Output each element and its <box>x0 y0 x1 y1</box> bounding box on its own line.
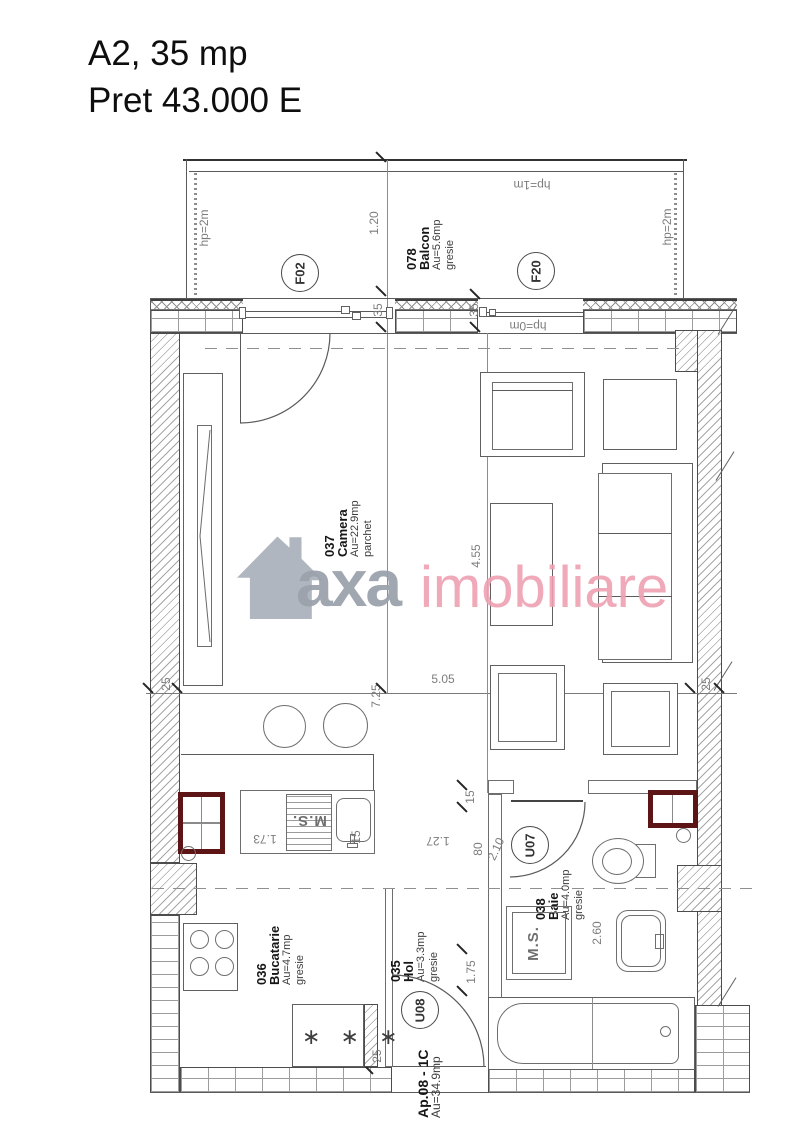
floor-plan: A2, 35 mp Pret 43.000 E hp=2m hp=2m hp=1… <box>0 0 800 1132</box>
bath-door-arc <box>510 802 585 877</box>
entry-door-arc <box>392 975 484 1067</box>
balcony-door-arc <box>240 333 330 423</box>
brand-name-pink: imobiliare <box>420 554 668 621</box>
wardrobe-door-chevron <box>200 430 210 642</box>
brand-name-gray: axa <box>296 545 400 621</box>
